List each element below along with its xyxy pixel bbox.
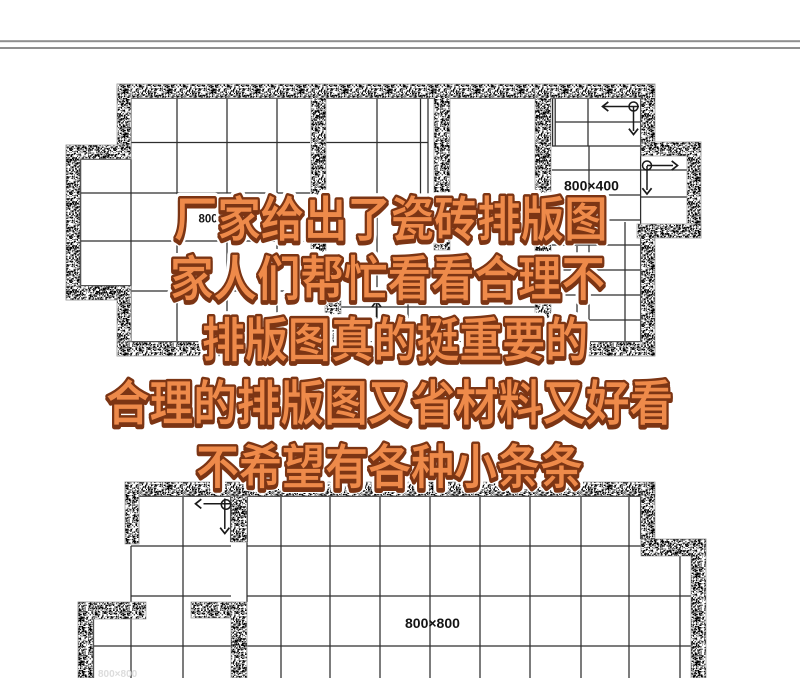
svg-text:800×800: 800×800 bbox=[98, 669, 138, 678]
svg-text:800×800: 800×800 bbox=[405, 615, 460, 631]
svg-text:800×400: 800×400 bbox=[564, 178, 619, 194]
